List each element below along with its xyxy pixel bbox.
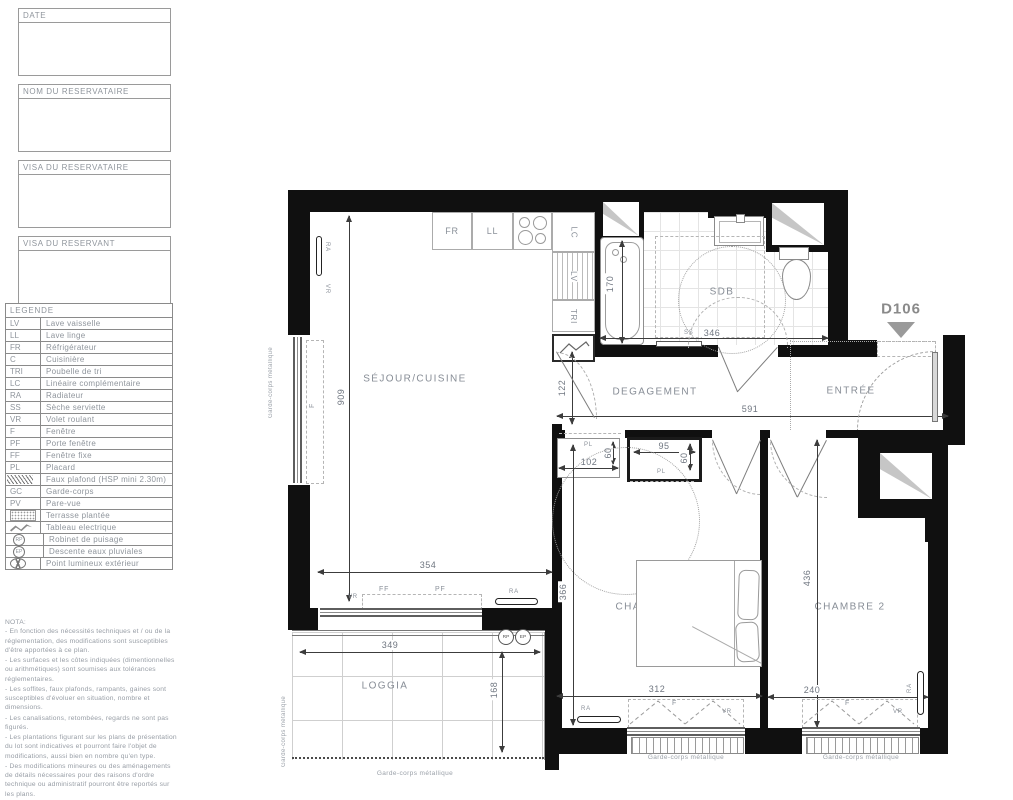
dim-line [573, 445, 574, 725]
window [293, 337, 302, 483]
radiator [917, 671, 924, 715]
wall [288, 485, 310, 610]
fridge: FR [432, 212, 472, 250]
wall [848, 340, 877, 357]
guardrail-label: Garde-corps métallique [823, 754, 899, 761]
bed [636, 560, 762, 667]
placard-front [559, 433, 621, 434]
window-label: F [309, 403, 316, 408]
zone-boundary [790, 340, 791, 430]
radiator-label: RA [509, 589, 519, 595]
guardrail-label-vertical: Garde-corps métallique [281, 652, 287, 767]
dim-sejour-height: 909 [336, 387, 346, 408]
radiator [577, 716, 621, 723]
dim-line [622, 241, 623, 343]
sorting-bin-label: TRI [569, 308, 578, 323]
dim-placard2: 95 [656, 441, 671, 451]
guardrail-label: Garde-corps métallique [377, 770, 453, 777]
rainwater-downpipe: EP [515, 629, 531, 645]
guardrail-label: Garde-corps métallique [648, 754, 724, 761]
dishwasher-label: LV [569, 271, 578, 282]
placard-label: PL [584, 442, 593, 448]
radiator-label: RA [324, 242, 330, 252]
duct-panel [603, 202, 639, 236]
dim-line [502, 652, 503, 752]
rainwater-label: EP [520, 635, 526, 640]
wall [943, 335, 965, 445]
radiator [316, 236, 322, 276]
dim-chambre2-depth: 436 [802, 568, 812, 589]
dim-chambre1-width: 312 [647, 684, 668, 694]
fixed-window-label: FF [379, 586, 389, 593]
dim-loggia-depth: 168 [489, 680, 499, 701]
room-label-degagement: DEGAGEMENT [612, 387, 697, 398]
sorting-bin: TRI [552, 300, 595, 332]
shutter-label: VR [348, 594, 358, 600]
wall [760, 430, 770, 438]
radiator [495, 598, 538, 605]
room-label-chambre2: CHAMBRE 2 [815, 602, 886, 613]
kitchen-linear: LC [552, 212, 595, 252]
shutter-label: VR [324, 284, 330, 294]
burner-icon [519, 217, 530, 228]
french-door-label: PF [435, 586, 446, 593]
dim-line [349, 216, 350, 601]
room-label-sejour: SÉJOUR/CUISINE [363, 374, 467, 385]
wall [288, 212, 310, 335]
room-label-loggia: LOGGIA [362, 681, 409, 692]
wall [552, 430, 565, 438]
shutter-label: VR [893, 709, 903, 715]
wall [826, 430, 948, 438]
shutter-label: VR [722, 709, 732, 715]
radiator-label: RA [581, 706, 591, 712]
dim-loggia-width: 349 [380, 640, 401, 650]
wall [828, 190, 848, 357]
window [627, 727, 745, 736]
dishwasher: LV [552, 252, 595, 300]
dim-tub: 170 [605, 274, 615, 295]
duct-panel [772, 203, 824, 245]
burner-icon [533, 216, 547, 230]
shutter-zone [306, 340, 324, 484]
duct-panel [880, 453, 932, 499]
dim-line [817, 440, 818, 727]
room-label-sdb: SDB [710, 287, 735, 298]
dim-hall: 591 [740, 404, 761, 414]
floorplan-sheet: DATE NOM DU RESERVATAIRE VISA DU RESERVA… [0, 0, 1013, 800]
wall [482, 608, 560, 630]
water-tap-label: RP [503, 635, 510, 640]
toilet-tank [779, 247, 809, 260]
wall [928, 518, 948, 730]
kitchen-linear-label: LC [569, 226, 578, 238]
door-swing [556, 352, 597, 419]
door-swing [712, 440, 761, 495]
guardrail [631, 737, 744, 754]
dim-chambre1-depth: 366 [558, 582, 568, 603]
wall [552, 728, 627, 754]
wall [745, 728, 802, 754]
wall [920, 728, 948, 754]
floorplan: FR LL LC LV TRI 170 [0, 0, 1013, 800]
door-swing [770, 440, 827, 498]
unit-marker-icon [887, 322, 915, 338]
window-label: F [672, 700, 677, 707]
entry-door-swing [857, 351, 936, 430]
dim-chambre2-width: 240 [802, 685, 823, 695]
washer-label: LL [487, 226, 499, 236]
burner-icon [535, 233, 546, 244]
window [802, 727, 920, 736]
stove [513, 212, 552, 250]
dim-line [557, 696, 762, 697]
window-label: F [845, 700, 850, 707]
dim-line [690, 444, 691, 470]
window [320, 608, 482, 617]
washer: LL [472, 212, 513, 250]
water-tap-point: RP [498, 629, 514, 645]
fridge-label: FR [445, 226, 459, 236]
dim-line [318, 572, 552, 573]
radiator-label: RA [907, 683, 913, 693]
door-leaf [737, 347, 778, 392]
dim-placard2-depth: 60 [679, 450, 689, 465]
loggia-guardrail [292, 757, 544, 759]
unit-id: D106 [881, 301, 921, 318]
wall [288, 608, 318, 630]
dim-bay: 354 [418, 560, 439, 570]
tap-icon [612, 249, 619, 256]
guardrail [806, 737, 919, 754]
guardrail-label-vertical: Garde-corps métallique [268, 268, 274, 418]
burner-icon [518, 230, 533, 245]
